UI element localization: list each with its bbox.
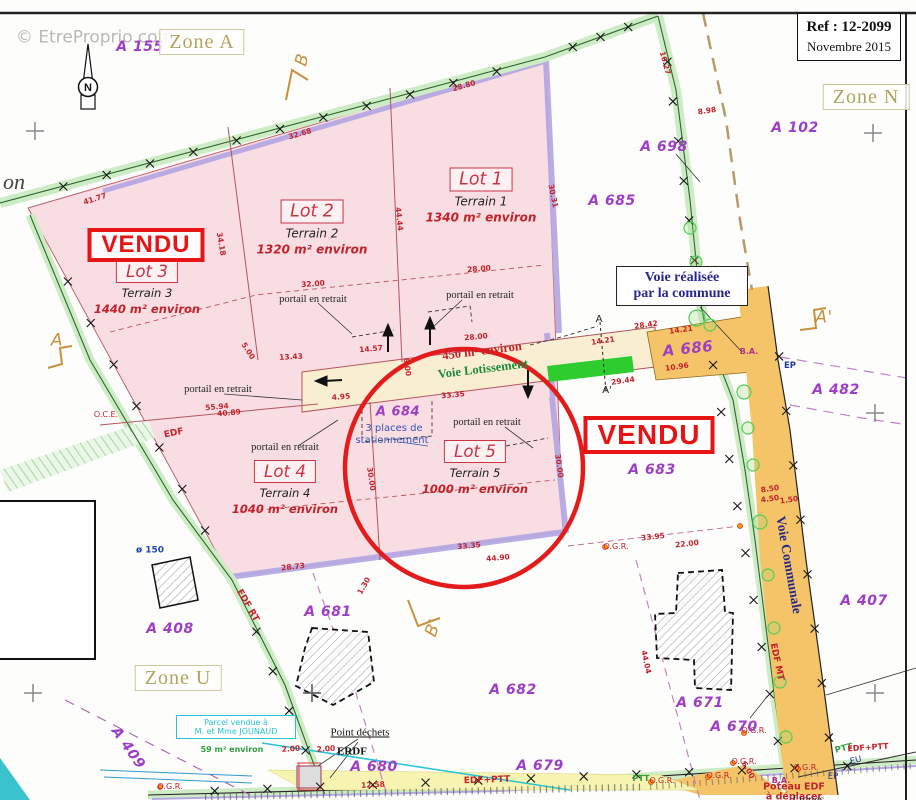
zone-label: Zone A — [159, 29, 244, 55]
zone-label: Zone N — [823, 84, 910, 110]
sold-parcel-note: Parcel vendue à M. et Mme JOUNAUD — [176, 715, 296, 739]
voie-realisee-box: Voie réalisée par la commune — [616, 266, 748, 306]
sold-parcel-line1: Parcel vendue à — [177, 718, 295, 727]
voie-realisee-line2: par la commune — [617, 286, 747, 302]
cadastral-plan: N — [0, 0, 916, 800]
zone-label: Zone U — [135, 665, 222, 691]
zone-boxes: Zone AZone NZone U — [0, 0, 916, 800]
sold-parcel-line2: M. et Mme JOUNAUD — [177, 727, 295, 736]
voie-realisee-line1: Voie réalisée — [617, 270, 747, 286]
ref-number: Ref : 12-2099 — [798, 19, 900, 36]
legend-box — [0, 500, 96, 660]
ref-box: Ref : 12-2099 Novembre 2015 — [797, 13, 901, 61]
ref-date: Novembre 2015 — [798, 39, 900, 55]
